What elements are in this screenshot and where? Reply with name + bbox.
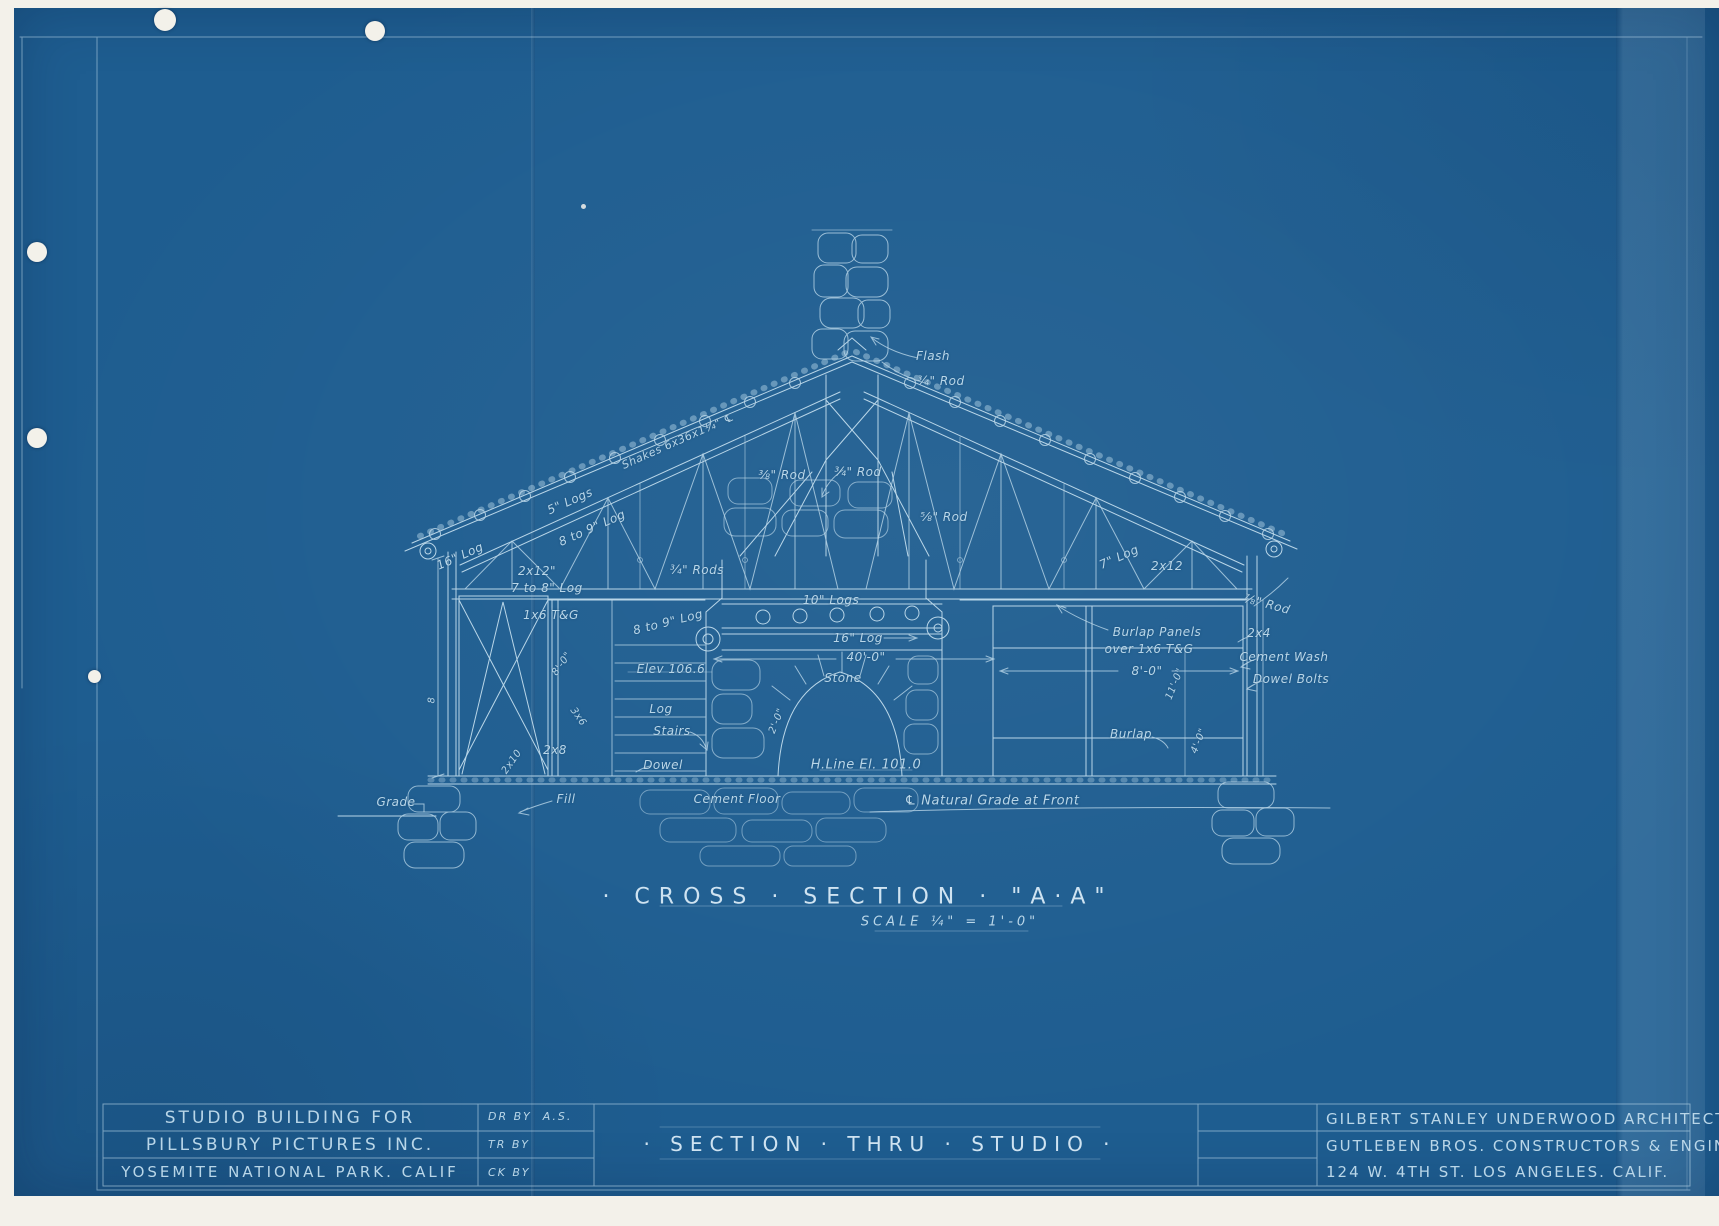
scanned-blueprint-page: { "colors": { "paper": "#f3f1ea", "sheet…: [0, 0, 1719, 1226]
annotation-label: 2x8: [543, 743, 567, 757]
drawn-by-value: A.S.: [543, 1110, 573, 1123]
project-location: YOSEMITE NATIONAL PARK. CALIF: [121, 1163, 459, 1181]
annotation-label: H.Line El. 101.0: [811, 758, 921, 773]
punch-hole: [27, 242, 47, 262]
drawing-scale: SCALE ¼" = 1'-0": [861, 915, 1039, 930]
traced-by-label: TR BY: [488, 1138, 530, 1151]
torn-notch: [88, 670, 101, 683]
annotation-label: Cement Wash: [1240, 650, 1329, 664]
annotation-label: 8'-0": [1132, 664, 1163, 678]
project-name-line1: STUDIO BUILDING FOR: [165, 1108, 415, 1128]
annotation-label: Elev 106.6: [637, 662, 706, 676]
sheet-title: · SECTION · THRU · STUDIO ·: [643, 1132, 1116, 1156]
checked-by-label: CK BY: [488, 1166, 530, 1179]
annotation-label: 7 to 8" Log: [511, 581, 582, 595]
drawn-by-row: DR BY A.S.: [488, 1110, 572, 1123]
drawn-by-label: DR BY: [488, 1110, 532, 1123]
annotation-label: ¾" Rod: [834, 465, 881, 479]
annotation-label: Grade: [376, 795, 415, 809]
architect-name: GILBERT STANLEY UNDERWOOD ARCHITECT: [1326, 1110, 1719, 1128]
annotation-label: ⅜" Rod: [758, 468, 805, 482]
annotation-label: ⅝" Rod: [920, 510, 967, 524]
annotation-label: 2x4: [1247, 626, 1271, 640]
annotation-label: over 1x6 T&G: [1105, 642, 1194, 656]
punch-hole: [154, 9, 176, 31]
annotation-label: 2x12": [518, 564, 556, 578]
annotation-label: Dowel: [643, 758, 683, 772]
annotation-label: ¾" Rod: [917, 374, 964, 388]
constructor-name: GUTLEBEN BROS. CONSTRUCTORS & ENGINEERS: [1326, 1137, 1719, 1155]
annotation-label: Burlap Panels: [1113, 625, 1202, 639]
blueprint-sheet: [14, 8, 1719, 1196]
annotation-label: 40'-0": [846, 650, 885, 664]
annotation-label: 10" Logs: [803, 593, 860, 607]
annotation-label: Burlap: [1110, 727, 1152, 741]
annotation-label: Log: [649, 702, 672, 716]
punch-hole: [27, 428, 47, 448]
annotation-label: Flash: [916, 349, 950, 363]
annotation-label: 8: [427, 697, 438, 704]
punch-hole: [365, 21, 385, 41]
annotation-label: Stairs: [653, 724, 690, 738]
annotation-label: Dowel Bolts: [1253, 672, 1329, 686]
annotation-label: ℄ Natural Grade at Front: [905, 794, 1080, 809]
drawing-title: · CROSS · SECTION · "A·A": [602, 885, 1113, 910]
annotation-label: Cement Floor: [694, 792, 781, 806]
firm-address: 124 W. 4TH ST. LOS ANGELES. CALIF.: [1326, 1163, 1669, 1181]
annotation-label: ¾" Rods: [670, 563, 724, 577]
annotation-label: 1x6 T&G: [523, 608, 579, 622]
paper-fleck: [581, 204, 586, 209]
annotation-label: 16" Log: [833, 631, 883, 645]
annotation-label: Stone: [824, 671, 861, 685]
annotation-label: 2x12: [1151, 559, 1183, 573]
project-name-line2: PILLSBURY PICTURES INC.: [146, 1135, 434, 1155]
annotation-label: Fill: [557, 792, 576, 806]
